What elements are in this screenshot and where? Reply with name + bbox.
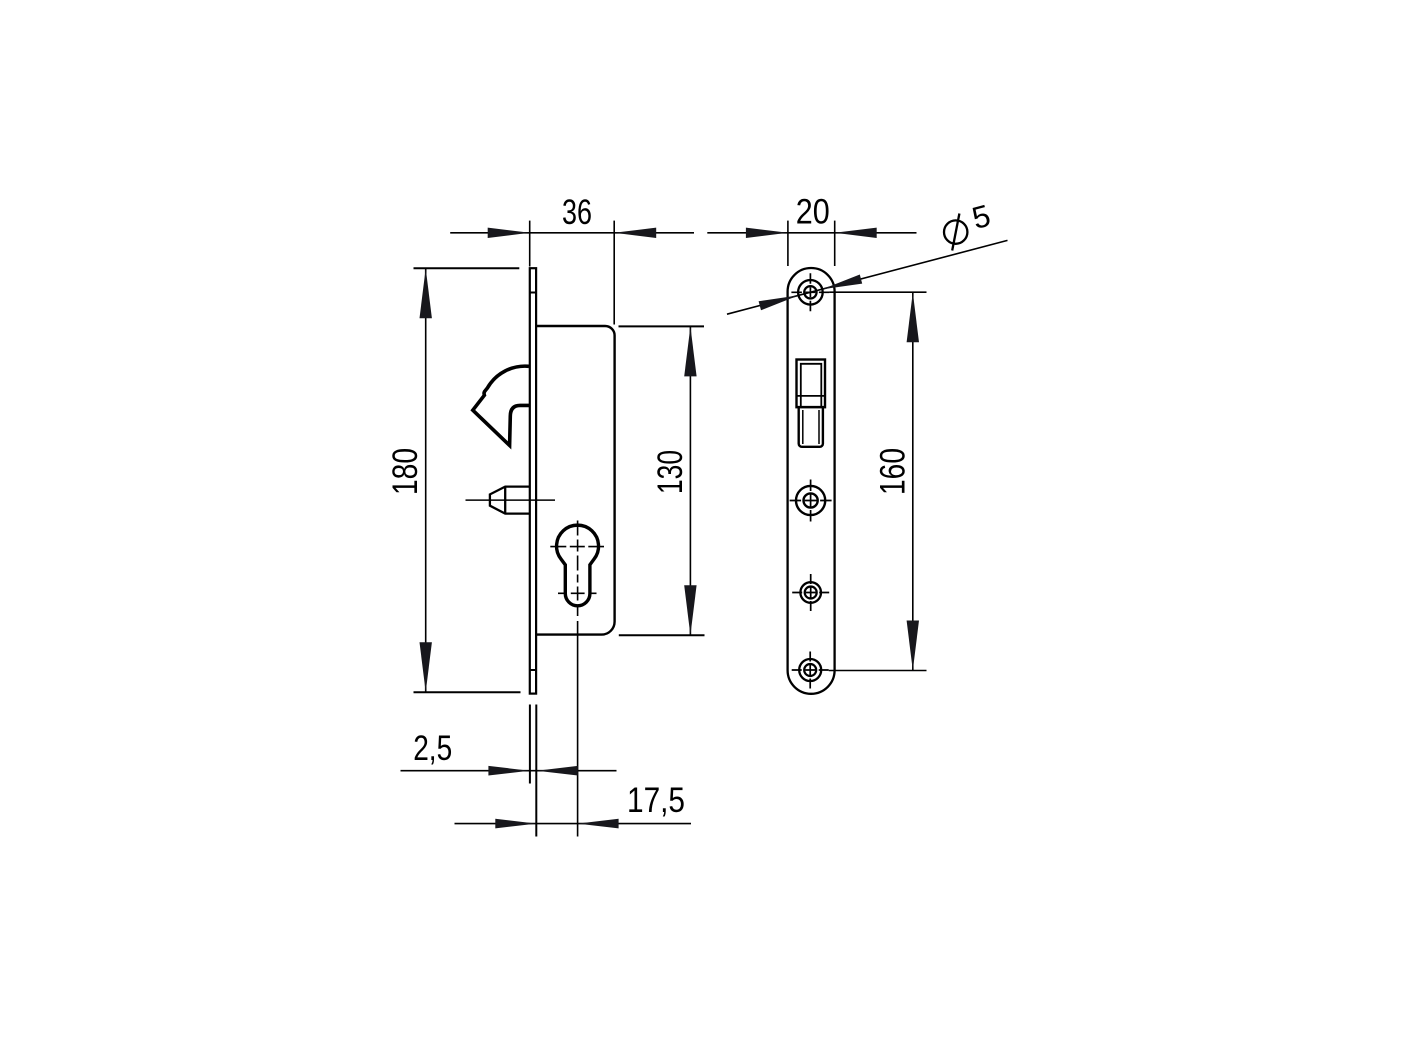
svg-text:20: 20 xyxy=(796,193,830,232)
svg-text:130: 130 xyxy=(651,450,690,494)
svg-text:17,5: 17,5 xyxy=(627,781,685,820)
svg-text:160: 160 xyxy=(874,448,913,495)
svg-text:180: 180 xyxy=(386,448,425,495)
svg-text:36: 36 xyxy=(562,193,592,232)
svg-text:2,5: 2,5 xyxy=(413,729,452,768)
